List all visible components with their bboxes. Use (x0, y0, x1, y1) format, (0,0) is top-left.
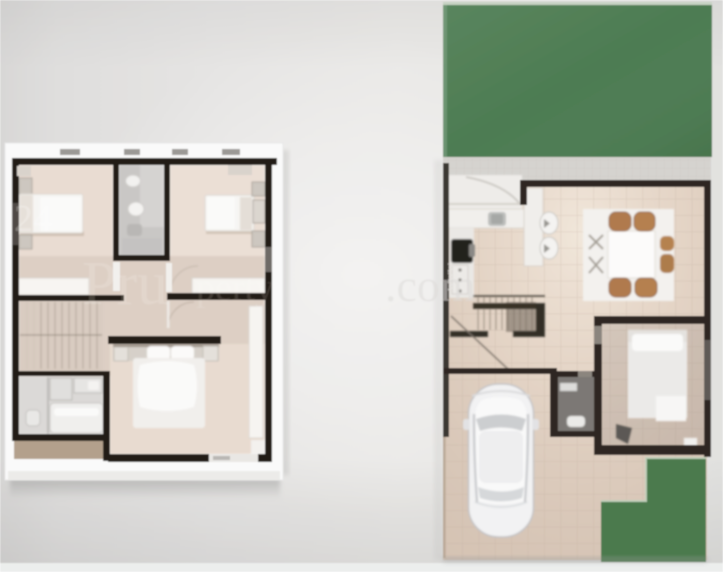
svg-text:.com: .com (385, 260, 476, 311)
svg-text:www: www (442, 262, 457, 291)
svg-text:24: 24 (14, 198, 52, 240)
svg-text:perty: perty (196, 267, 274, 309)
svg-text:Pru: Pru (82, 250, 168, 318)
